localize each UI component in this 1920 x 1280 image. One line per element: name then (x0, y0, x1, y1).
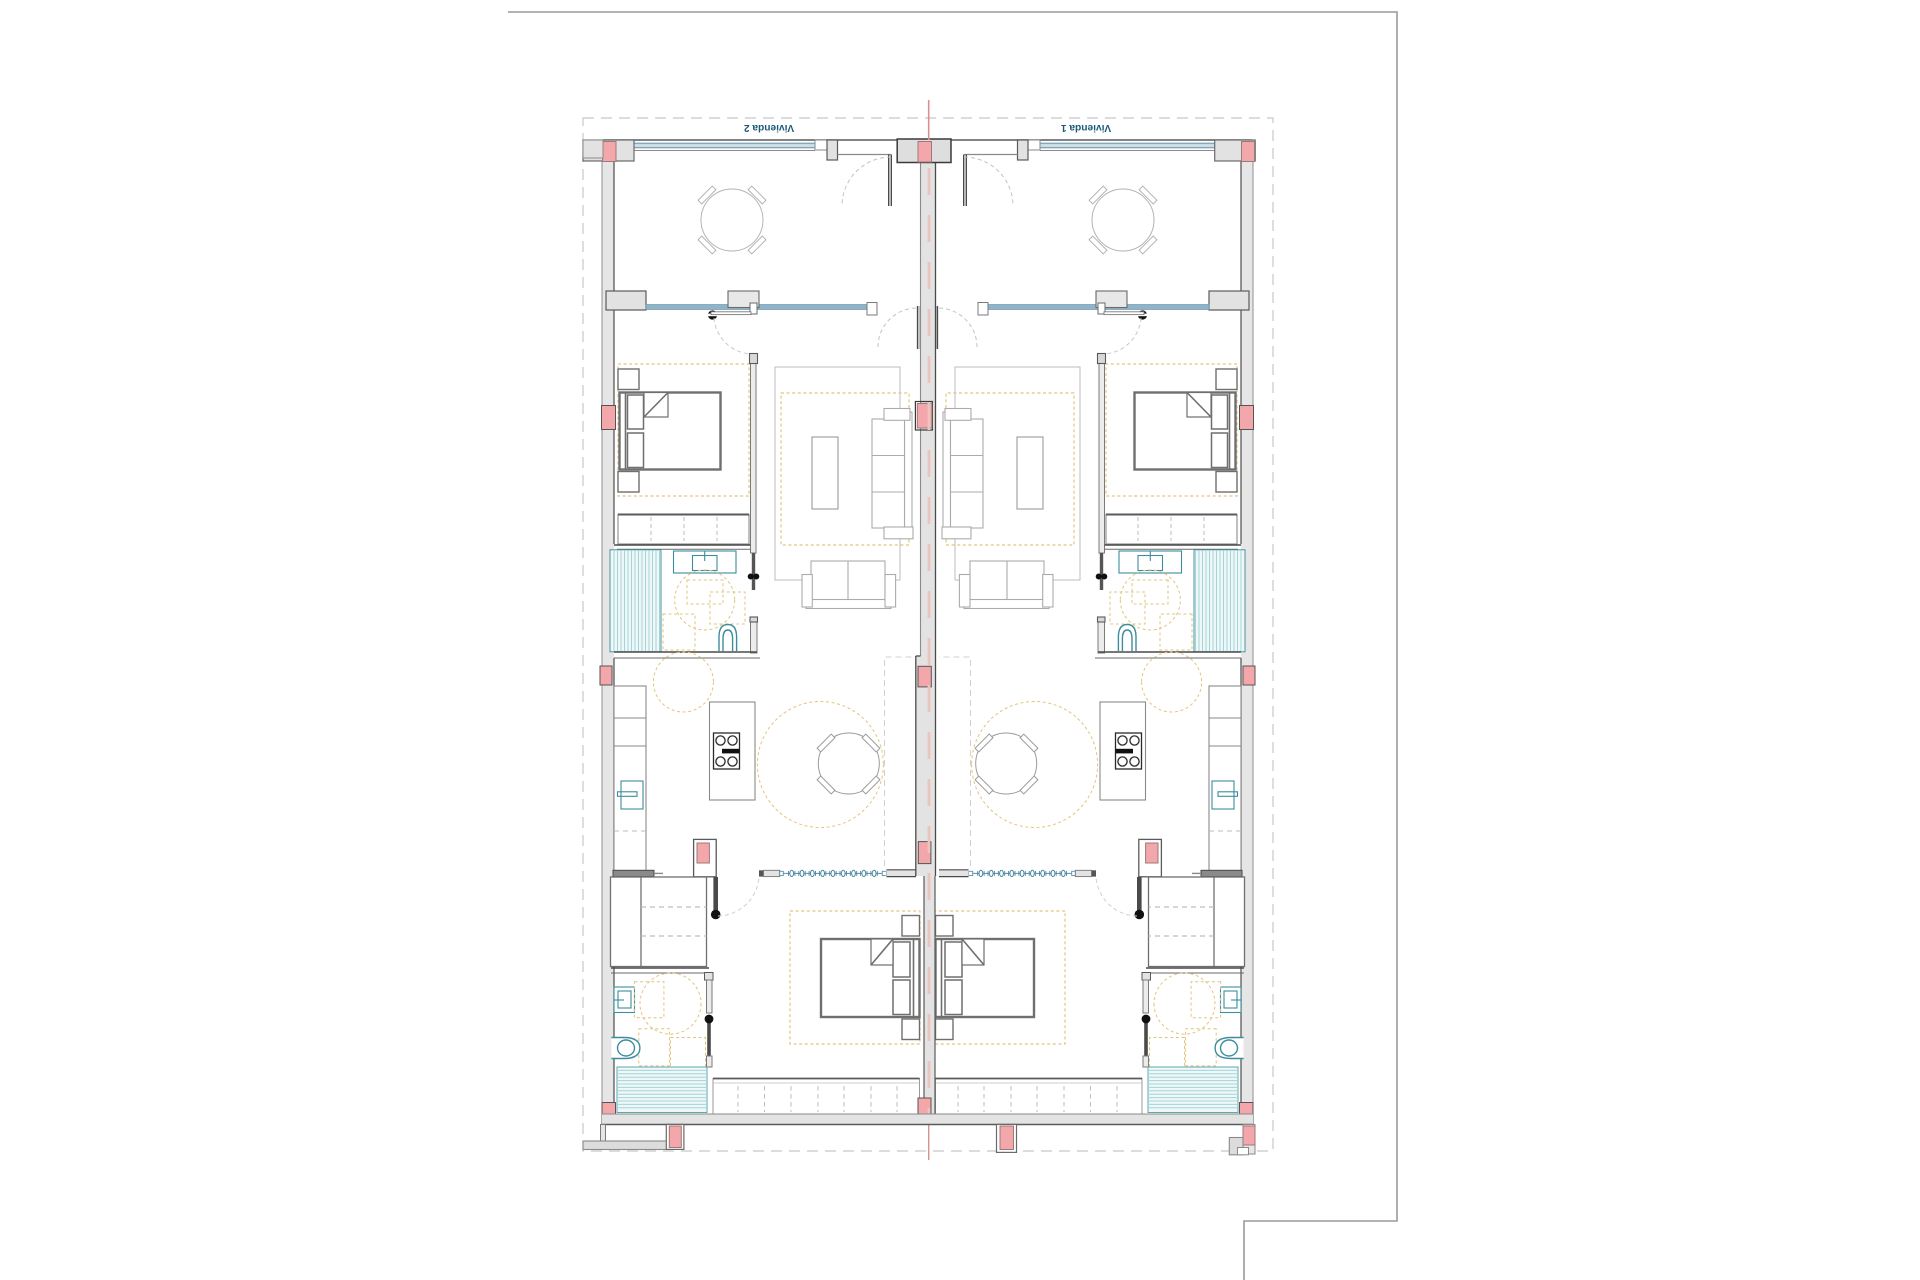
svg-text:Vivienda 1: Vivienda 1 (1061, 122, 1112, 133)
svg-text:Vivienda 2: Vivienda 2 (744, 122, 795, 133)
